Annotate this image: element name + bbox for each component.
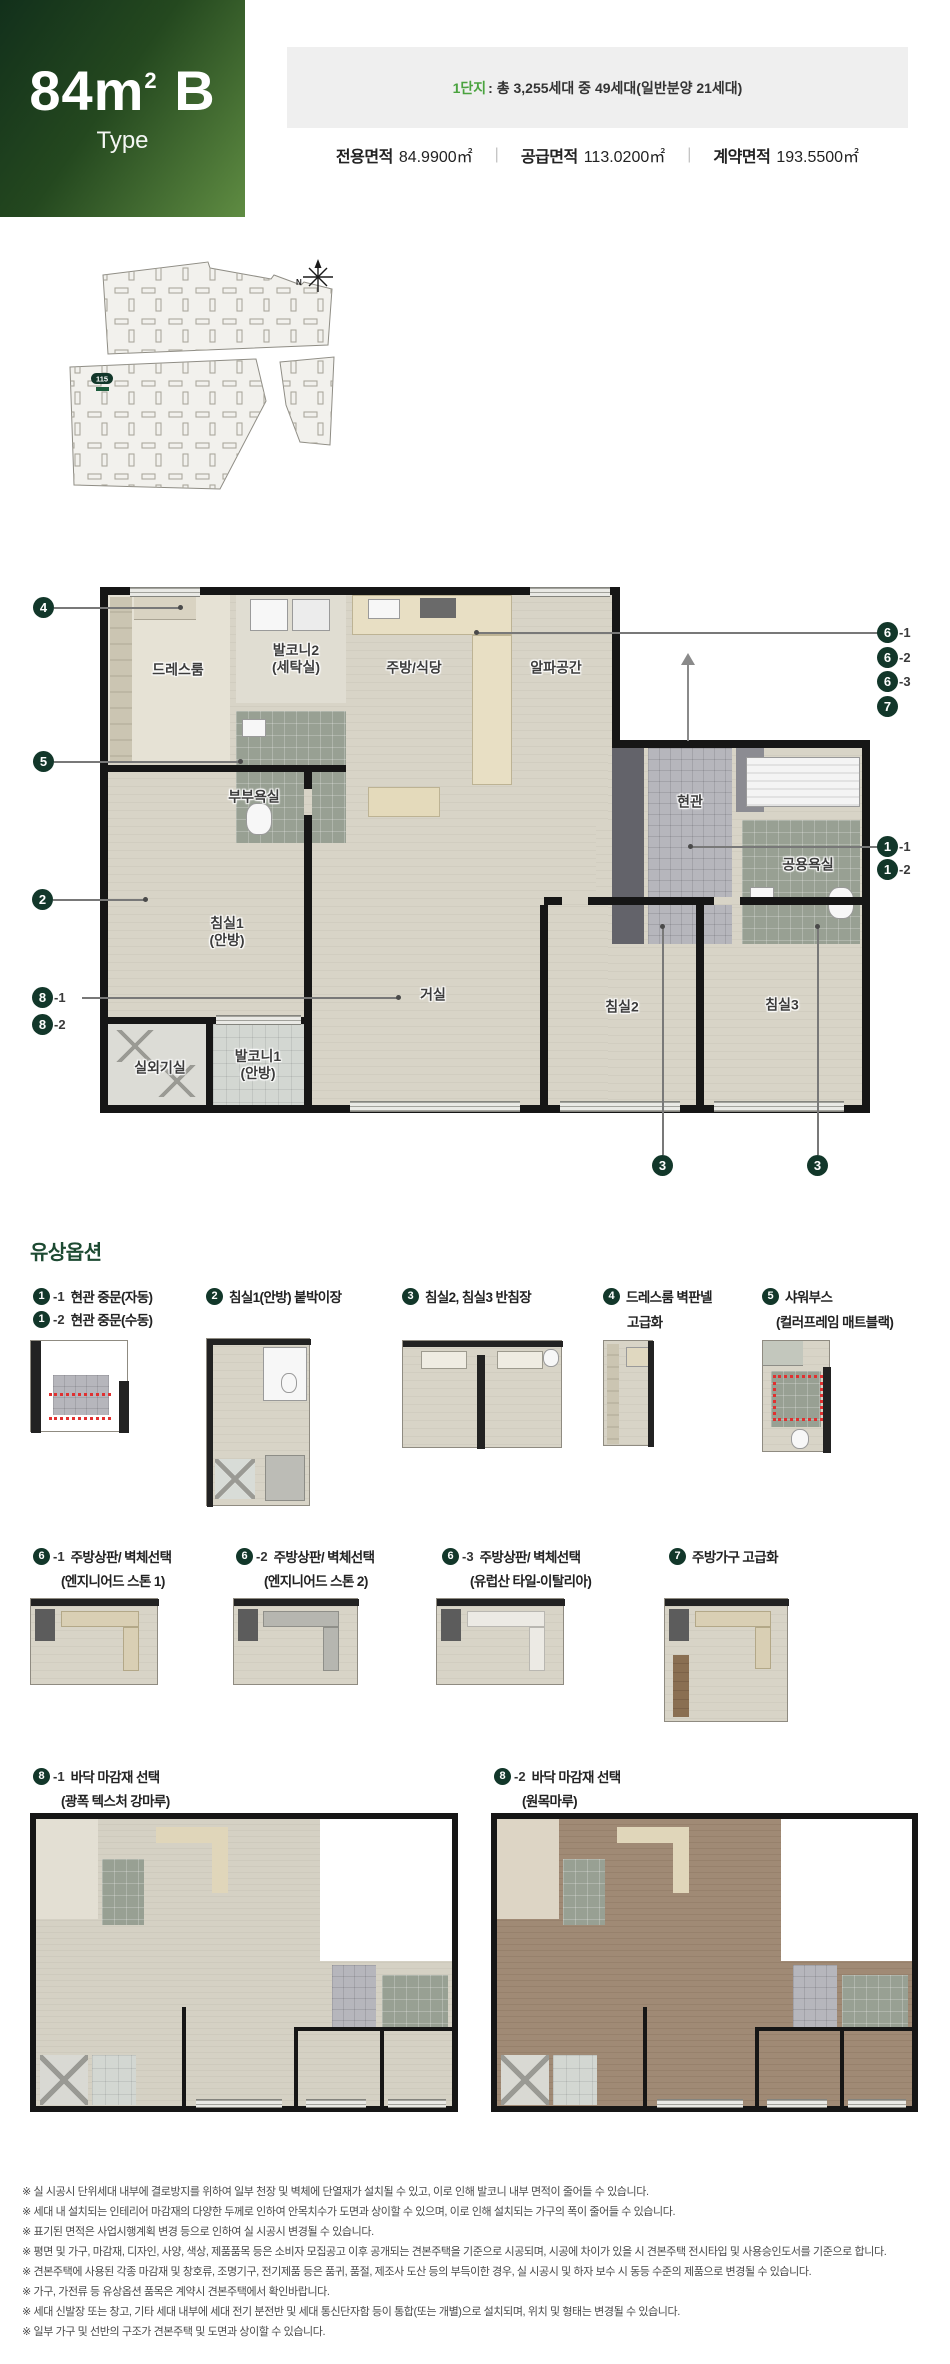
option-number-icon: 4: [603, 1288, 620, 1305]
option-suffix: -1: [53, 1549, 65, 1564]
wall: [755, 2027, 912, 2031]
wall: [31, 1341, 41, 1433]
marker-circle: 2: [32, 889, 53, 910]
option-number-icon: 6: [442, 1548, 459, 1565]
footnote-line: ※ 평면 및 가구, 마감재, 디자인, 사양, 색상, 제품품목 등은 소비자…: [22, 2242, 886, 2262]
footnote-line: ※ 실 시공시 단위세대 내부에 결로방지를 위하여 일부 천장 및 벽체에 단…: [22, 2182, 886, 2202]
utility-rooms: [497, 1819, 559, 1919]
option-number-icon: 8: [33, 1768, 50, 1785]
door-gap: [304, 789, 312, 815]
room-label-ac-unit: 실외기실: [134, 1060, 186, 1077]
dressroom-closet: [110, 597, 132, 761]
kitchen-counter: [673, 1843, 689, 1893]
leader-line: [54, 761, 240, 763]
wall: [403, 1341, 563, 1347]
shower-highlight: [773, 1375, 823, 1421]
toilet-icon: [791, 1429, 809, 1449]
ac-room: [501, 2055, 549, 2105]
wall: [119, 1381, 129, 1433]
option-7-thumbnail: [664, 1598, 788, 1722]
balcony-hatch: [215, 1459, 255, 1499]
options-section-title: 유상옵션: [30, 1236, 102, 1265]
entrance-arrow: [687, 665, 689, 741]
marker-6-3: 6-3: [877, 671, 911, 692]
kitchen-counter: [156, 1827, 228, 1843]
option-suffix: -1: [53, 1289, 65, 1304]
kitchen-island: [368, 787, 440, 817]
marker-circle: 8: [32, 1014, 53, 1035]
counter: [61, 1611, 139, 1627]
wall: [206, 1024, 213, 1105]
wall: [234, 1599, 359, 1606]
leader-dot: [474, 630, 479, 635]
marker-circle: 3: [652, 1155, 673, 1176]
option-6-1-thumbnail: [30, 1598, 158, 1685]
counter: [695, 1611, 771, 1627]
counter: [529, 1627, 545, 1671]
kitchen-counter: [617, 1827, 689, 1843]
room-label-kitchen: 주방/식당: [386, 660, 441, 677]
balcony: [553, 2055, 597, 2105]
option-6-2-thumbnail: [233, 1598, 358, 1685]
leader-dot: [143, 897, 148, 902]
option-label: 샤워부스: [785, 1286, 832, 1306]
footnotes: ※ 실 시공시 단위세대 내부에 결로방지를 위하여 일부 천장 및 벽체에 단…: [22, 2182, 886, 2342]
marker-suffix: -2: [899, 650, 911, 665]
room-label-balcony1: 발코니1(안방): [235, 1048, 281, 1082]
balcony: [92, 2055, 136, 2105]
option-label: 침실1(안방) 붙박이장: [229, 1286, 341, 1306]
marker-suffix: -2: [899, 862, 911, 877]
footnote-line: ※ 견본주택에 사용된 각종 마감재 및 창호류, 조명기구, 전기제품 등은 …: [22, 2262, 886, 2282]
utility-rooms: [36, 1819, 98, 1919]
counter: [123, 1627, 139, 1671]
fridge: [238, 1609, 258, 1641]
room-label-dressroom: 드레스룸: [152, 662, 204, 679]
option-7-header: 7주방가구 고급화: [669, 1546, 778, 1566]
marker-suffix: -1: [899, 625, 911, 640]
marker-circle: 6: [877, 622, 898, 643]
room-label-bed3: 침실3: [765, 997, 799, 1014]
option-6-3-header: 6-3주방상판/ 벽체선택: [442, 1546, 580, 1566]
option-suffix: -2: [256, 1549, 268, 1564]
marker-circle: 6: [877, 647, 898, 668]
leader-dot: [660, 924, 665, 929]
north-label: N: [296, 278, 302, 287]
option-6-1-header: 6-1주방상판/ 벽체선택: [33, 1546, 171, 1566]
leader-line: [817, 928, 819, 1155]
counter: [755, 1627, 771, 1669]
option-1-thumbnail: [30, 1340, 128, 1432]
marker-3-right: 3: [807, 1155, 828, 1176]
footnote-line: ※ 일부 가구 및 선반의 구조가 견본주택 및 도면과 상이할 수 있습니다.: [22, 2322, 886, 2342]
closet-strip: [607, 1344, 619, 1444]
leader-dot: [815, 924, 820, 929]
marker-8-2: 8-2: [32, 1014, 66, 1035]
washer-icon: [250, 599, 288, 631]
wall: [182, 2007, 186, 2106]
option-4-thumbnail: [603, 1340, 653, 1446]
window: [657, 2099, 743, 2108]
option-number-icon: 3: [402, 1288, 419, 1305]
window: [530, 587, 610, 597]
wall: [540, 905, 548, 1105]
door-highlight: [49, 1417, 111, 1420]
toilet-icon: [281, 1373, 297, 1393]
option-6-2-header-line2: (엔지니어드 스톤 2): [264, 1570, 368, 1590]
entry: [332, 1965, 376, 2031]
option-4-header: 4드레스룸 벽판넬: [603, 1286, 712, 1306]
footnote-line: ※ 표기된 면적은 사업시행계획 변경 등으로 인하여 실 시공시 변경될 수 …: [22, 2222, 886, 2242]
leader-dot: [688, 844, 693, 849]
marker-circle: 8: [32, 987, 53, 1008]
option-suffix: -2: [53, 1312, 65, 1327]
type-badge: 84m2 B Type: [0, 0, 245, 217]
option-number-icon: 1: [33, 1288, 50, 1305]
upgraded-cabinet: [673, 1655, 689, 1717]
leader-line: [662, 928, 664, 1155]
option-8-1-header: 8-1바닥 마감재 선택: [33, 1766, 160, 1786]
footnote-line: ※ 가구, 가전류 등 유상옵션 품목은 계약시 견본주택에서 확인바랍니다.: [22, 2282, 886, 2302]
footnote-line: ※ 세대 신발장 또는 창고, 기타 세대 내부에 세대 전기 분전반 및 세대…: [22, 2302, 886, 2322]
option-3-thumbnail: [402, 1340, 562, 1448]
option-label: 현관 중문(자동): [71, 1286, 153, 1306]
marker-suffix: -1: [54, 990, 66, 1005]
fridge: [35, 1609, 55, 1641]
option-number-icon: 5: [762, 1288, 779, 1305]
bathroom: [842, 1975, 908, 2027]
option-number-icon: 6: [33, 1548, 50, 1565]
marker-1-2: 1-2: [877, 859, 911, 880]
marker-6-1: 6-1: [877, 622, 911, 643]
wall: [477, 1355, 485, 1449]
option-6-1-header-line2: (엔지니어드 스톤 1): [61, 1570, 165, 1590]
wall: [840, 2031, 844, 2106]
wall: [823, 1367, 831, 1453]
closet: [421, 1351, 467, 1369]
wall: [294, 2031, 298, 2106]
leader-line: [54, 607, 180, 609]
option-label: 주방상판/ 벽체선택: [71, 1546, 172, 1566]
marker-3-left: 3: [652, 1155, 673, 1176]
option-2-header: 2침실1(안방) 붙박이장: [206, 1286, 341, 1306]
room-label-bed1: 침실1(안방): [209, 915, 244, 949]
footnote-line: ※ 세대 내 설치되는 인테리어 마감재의 다양한 두께로 인하여 안목치수가 …: [22, 2202, 886, 2222]
option-8-2-thumbnail: [491, 1813, 918, 2112]
option-8-2-header-line2: (원목마루): [522, 1790, 577, 1810]
wall: [643, 2007, 647, 2106]
leader-dot: [238, 759, 243, 764]
complex-units-text: : 총 3,255세대 중 49세대(일반분양 21세대): [488, 78, 742, 98]
option-1-1-header: 1-1현관 중문(자동): [33, 1286, 152, 1306]
marker-8-1: 8-1: [32, 987, 66, 1008]
toilet-icon: [246, 803, 272, 835]
option-suffix: -2: [514, 1769, 526, 1784]
bathroom: [102, 1859, 144, 1925]
marker-suffix: -1: [899, 839, 911, 854]
kitchen-counter-right: [472, 635, 512, 785]
entry-closet-left: [612, 748, 644, 944]
bathroom: [382, 1975, 448, 2027]
wall: [294, 2027, 452, 2031]
kitchen-counter: [212, 1843, 228, 1893]
area-item: 공급면적113.0200㎡: [521, 143, 665, 167]
option-label: 주방상판/ 벽체선택: [274, 1546, 375, 1566]
dryer-icon: [292, 599, 330, 631]
type-label: Type: [96, 127, 148, 155]
marker-7: 7: [877, 696, 898, 717]
option-label: 현관 중문(수동): [71, 1309, 153, 1329]
closet: [497, 1351, 543, 1369]
window: [196, 2099, 282, 2108]
marker-2: 2: [32, 889, 53, 910]
type-size: 84m2 B: [29, 63, 215, 119]
wall: [304, 1017, 312, 1105]
option-2-thumbnail: [206, 1338, 310, 1506]
wall: [544, 897, 862, 905]
option-8-1-header-line2: (광폭 텍스처 강마루): [61, 1790, 170, 1810]
option-6-3-header-line2: (유럽산 타일-이탈리아): [470, 1570, 591, 1590]
marker-circle: 7: [877, 696, 898, 717]
room-label-entry: 현관: [677, 794, 703, 811]
room-common-bath: [742, 820, 860, 944]
option-6-3-thumbnail: [436, 1598, 564, 1685]
fridge: [441, 1609, 461, 1641]
window: [767, 2099, 827, 2108]
sink-icon: [242, 719, 266, 737]
marker-circle: 1: [877, 836, 898, 857]
option-number-icon: 2: [206, 1288, 223, 1305]
option-8-2-header: 8-2바닥 마감재 선택: [494, 1766, 621, 1786]
closet: [763, 1341, 803, 1366]
marker-suffix: -2: [54, 1017, 66, 1032]
area-summary: 전용면적84.9900㎡ | 공급면적113.0200㎡ | 계약면적193.5…: [287, 142, 908, 168]
room-label-alpha: 알파공간: [530, 660, 582, 677]
entrance-arrow-head: [681, 653, 695, 665]
leader-line: [82, 997, 398, 999]
option-suffix: -3: [462, 1549, 474, 1564]
fridge: [669, 1609, 689, 1641]
window: [350, 1101, 520, 1112]
option-label: 침실2, 침실3 반침장: [425, 1286, 531, 1306]
door-gap: [562, 897, 588, 905]
range-icon: [420, 598, 456, 618]
room-label-living: 거실: [420, 987, 446, 1004]
door-highlight: [49, 1393, 111, 1396]
marker-5: 5: [33, 751, 54, 772]
option-label: 주방상판/ 벽체선택: [480, 1546, 581, 1566]
cabinet: [626, 1347, 650, 1367]
window: [714, 1101, 844, 1112]
option-3-header: 3침실2, 침실3 반침장: [402, 1286, 531, 1306]
marker-circle: 1: [877, 859, 898, 880]
floor-plan: 드레스룸 발코니2(세탁실) 주방/식당 알파공간 부부욕실 현관 공용욕실 침…: [0, 587, 950, 1197]
outside-area: [320, 1819, 452, 1961]
room-label-master-bath: 부부욕실: [228, 789, 280, 806]
wall: [696, 905, 704, 1105]
option-label: 주방가구 고급화: [692, 1546, 778, 1566]
marker-circle: 5: [33, 751, 54, 772]
marker-circle: 3: [807, 1155, 828, 1176]
room-label-balcony2: 발코니2(세탁실): [272, 642, 320, 676]
divider: |: [687, 146, 691, 164]
option-5-thumbnail: [762, 1340, 830, 1452]
divider: |: [495, 146, 499, 164]
window: [388, 2099, 446, 2108]
option-5-header-line2: (컬러프레임 매트블랙): [776, 1311, 893, 1331]
brochure-page: 84m2 B Type 1단지 : 총 3,255세대 중 49세대(일반분양 …: [0, 0, 950, 2364]
counter: [467, 1611, 545, 1627]
leader-line: [692, 846, 878, 848]
wall: [31, 1599, 159, 1606]
wall: [755, 2031, 759, 2106]
wall: [437, 1599, 565, 1606]
complex-name: 1단지: [453, 78, 487, 98]
bathtub-icon: [746, 757, 860, 807]
outside-area: [781, 1819, 912, 1961]
option-label: 드레스룸 벽판넬: [626, 1286, 712, 1306]
area-item: 계약면적193.5500㎡: [713, 143, 859, 167]
option-suffix: -1: [53, 1769, 65, 1784]
wall: [380, 2031, 384, 2106]
option-label: 바닥 마감재 선택: [71, 1766, 160, 1786]
wall: [648, 1341, 654, 1447]
wall: [665, 1599, 789, 1606]
complex-info-box: 1단지 : 총 3,255세대 중 49세대(일반분양 21세대): [287, 47, 908, 128]
wall: [207, 1339, 213, 1507]
leader-dot: [396, 995, 401, 1000]
kitchen-sink-icon: [368, 599, 400, 619]
marker-circle: 6: [877, 671, 898, 692]
bathroom: [563, 1859, 605, 1925]
counter: [263, 1611, 339, 1627]
area-item: 전용면적84.9900㎡: [336, 143, 473, 167]
marker-4: 4: [33, 597, 54, 618]
option-1-2-header: 1-2현관 중문(수동): [33, 1309, 152, 1329]
room-label-common-bath: 공용욕실: [782, 857, 834, 874]
option-6-2-header: 6-2주방상판/ 벽체선택: [236, 1546, 374, 1566]
window: [216, 1015, 301, 1025]
window: [848, 2099, 906, 2108]
svg-text:115: 115: [96, 375, 108, 384]
wall: [207, 1339, 311, 1345]
closet: [265, 1455, 305, 1501]
window: [306, 2099, 366, 2108]
entry: [793, 1965, 837, 2031]
option-number-icon: 6: [236, 1548, 253, 1565]
option-8-1-thumbnail: [30, 1813, 458, 2112]
marker-suffix: -3: [899, 674, 911, 689]
door-gap: [714, 897, 740, 905]
toilet-icon: [543, 1349, 559, 1367]
marker-6-2: 6-2: [877, 647, 911, 668]
ac-room: [40, 2055, 88, 2105]
option-number-icon: 8: [494, 1768, 511, 1785]
window: [130, 587, 200, 597]
site-plan-map: 115 N: [58, 253, 348, 495]
option-number-icon: 1: [33, 1311, 50, 1328]
wall: [108, 765, 346, 772]
counter: [323, 1627, 339, 1671]
leader-line: [478, 632, 878, 634]
option-number-icon: 7: [669, 1548, 686, 1565]
marker-1-1: 1-1: [877, 836, 911, 857]
room-label-bed2: 침실2: [605, 999, 639, 1016]
option-4-header-line2: 고급화: [627, 1311, 662, 1331]
ac-hatch: [116, 1030, 154, 1062]
leader-dot: [178, 605, 183, 610]
leader-line: [53, 899, 145, 901]
option-label: 바닥 마감재 선택: [532, 1766, 621, 1786]
option-5-header: 5샤워부스: [762, 1286, 832, 1306]
marker-circle: 4: [33, 597, 54, 618]
